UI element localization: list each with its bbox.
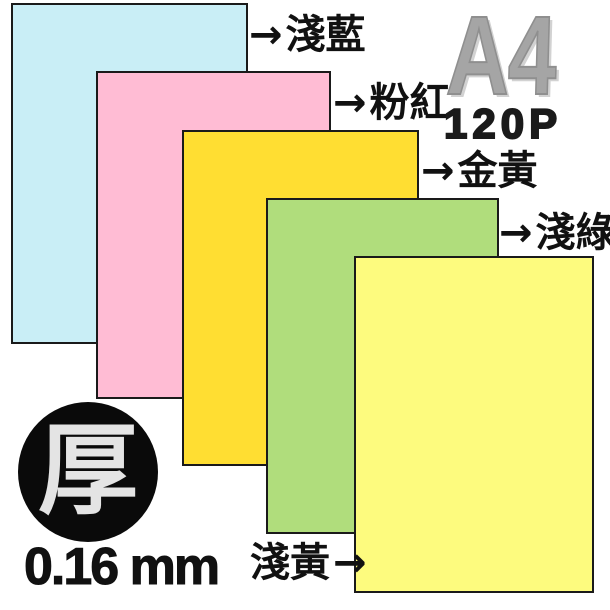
arrow-right-icon: → — [421, 149, 455, 193]
callout-pink: →粉紅 — [330, 81, 450, 125]
callout-light-yellow-text: 淺黃 — [250, 541, 330, 585]
callout-gold-yellow-text: 金黃 — [458, 149, 538, 193]
thickness-badge-glyph: 厚 — [38, 422, 138, 522]
arrow-right-icon: → — [333, 541, 367, 585]
callout-light-yellow: 淺黃→ — [250, 541, 370, 585]
arrow-right-icon: → — [333, 81, 367, 125]
thickness-badge: 厚 — [18, 402, 158, 542]
paper-size-label: A4 — [445, 6, 556, 106]
arrow-right-icon: → — [249, 13, 283, 57]
callout-pink-text: 粉紅 — [370, 81, 450, 125]
arrow-right-icon: → — [499, 211, 533, 255]
callout-gold-yellow: →金黃 — [418, 149, 538, 193]
callout-light-green: →淺綠 — [496, 211, 610, 255]
thickness-value: 0.16 mm — [24, 541, 218, 593]
paper-sheet-light-yellow — [354, 256, 594, 593]
paper-weight-label: 120P — [444, 103, 562, 145]
callout-light-green-text: 淺綠 — [536, 211, 610, 255]
callout-light-blue-text: 淺藍 — [286, 13, 366, 57]
product-image: →淺藍 →粉紅 →金黃 →淺綠 淺黃→ A4 120P 厚 0.16 mm — [0, 0, 610, 610]
callout-light-blue: →淺藍 — [246, 13, 366, 57]
